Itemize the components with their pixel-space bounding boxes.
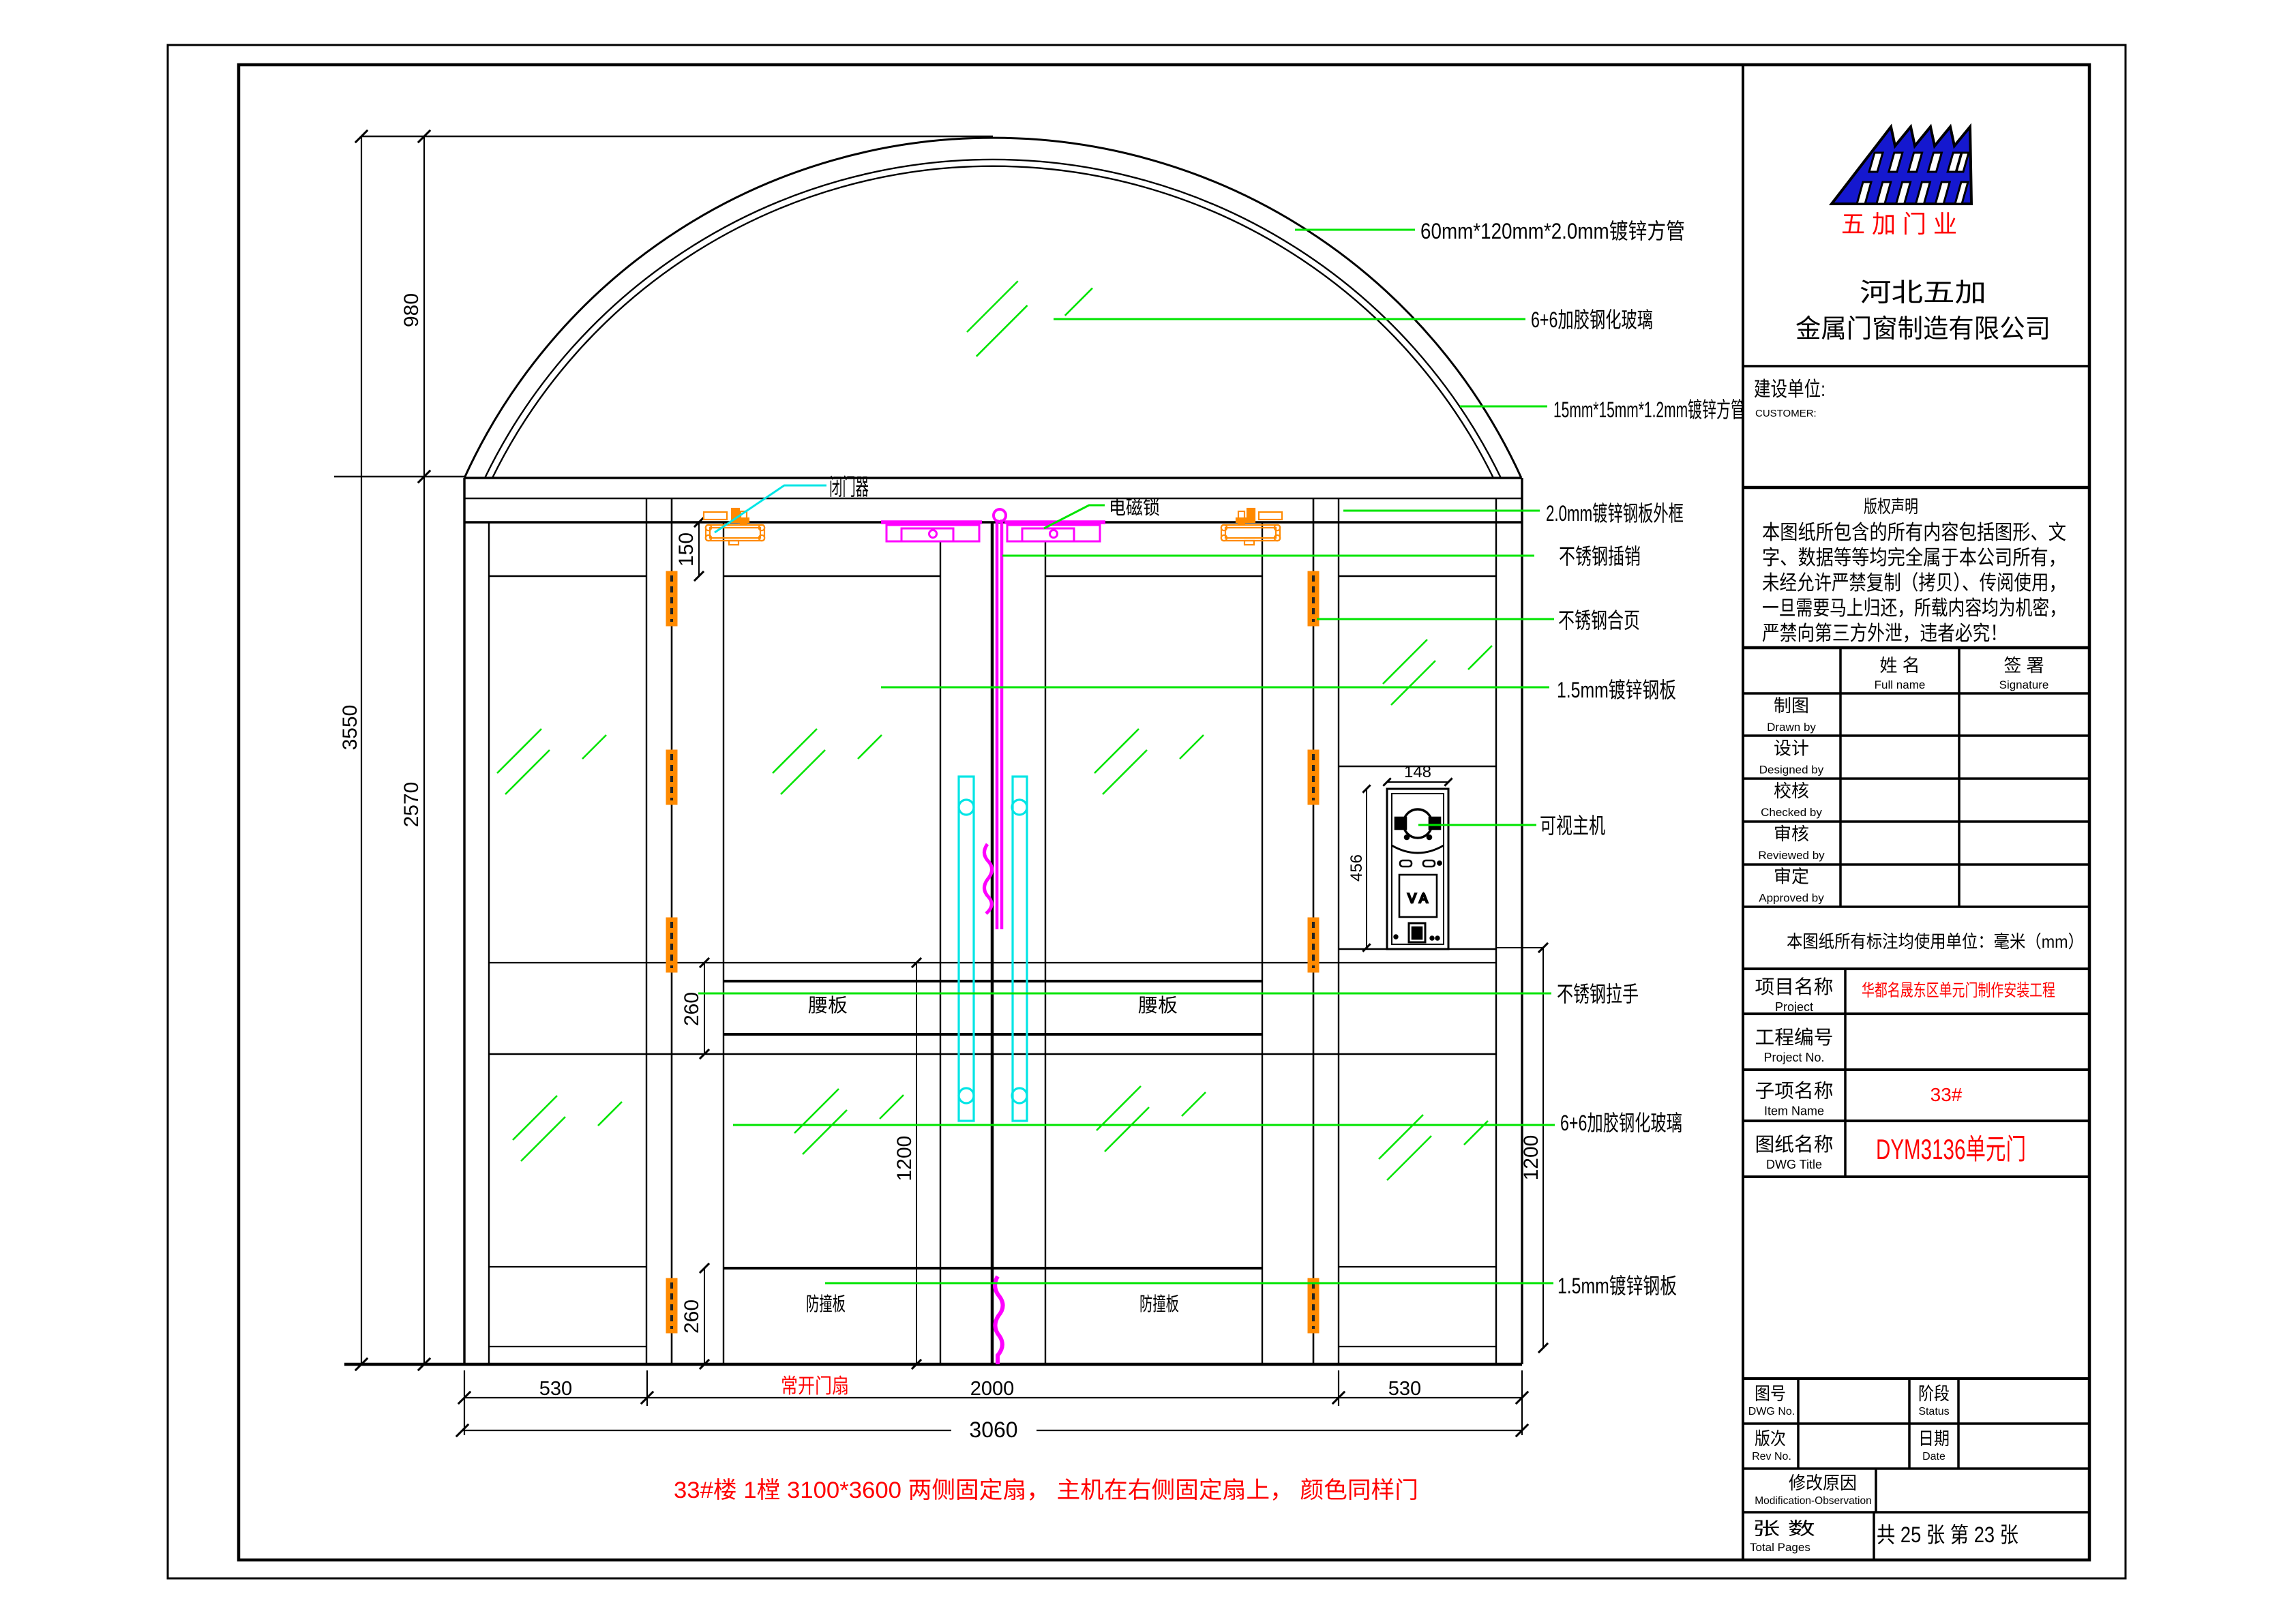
svg-text:DYM3136单元门: DYM3136单元门 — [1876, 1133, 2026, 1165]
svg-text:1.5mm镀锌钢板: 1.5mm镀锌钢板 — [1557, 678, 1676, 702]
svg-text:Signature: Signature — [1999, 678, 2049, 691]
svg-text:Approved by: Approved by — [1759, 891, 1824, 904]
svg-text:签 署: 签 署 — [2003, 655, 2044, 676]
svg-text:1200: 1200 — [893, 1136, 916, 1182]
svg-text:本图纸所有标注均使用单位：毫米（mm）: 本图纸所有标注均使用单位：毫米（mm） — [1787, 931, 2084, 952]
svg-text:腰板: 腰板 — [808, 995, 848, 1016]
svg-text:Status: Status — [1918, 1406, 1949, 1417]
svg-text:Project No.: Project No. — [1763, 1051, 1824, 1064]
svg-text:设计: 设计 — [1774, 738, 1809, 759]
svg-text:Drawn by: Drawn by — [1767, 721, 1816, 734]
svg-text:2.0mm镀锌钢板外框: 2.0mm镀锌钢板外框 — [1546, 501, 1684, 526]
svg-text:图纸名称: 图纸名称 — [1755, 1134, 1834, 1155]
svg-text:Reviewed by: Reviewed by — [1758, 849, 1825, 862]
svg-text:Date: Date — [1922, 1451, 1945, 1462]
svg-text:金属门窗制造有限公司: 金属门窗制造有限公司 — [1795, 315, 2051, 344]
svg-text:电磁锁: 电磁锁 — [1109, 497, 1160, 518]
svg-text:一旦需要马上归还，所载内容均为机密，: 一旦需要马上归还，所载内容均为机密， — [1762, 597, 2066, 620]
svg-text:33#: 33# — [1930, 1084, 1963, 1105]
svg-text:不锈钢合页: 不锈钢合页 — [1558, 608, 1640, 633]
svg-text:腰板: 腰板 — [1138, 995, 1178, 1016]
svg-text:共 25 张 第 23 张: 共 25 张 第 23 张 — [1877, 1522, 2018, 1547]
svg-text:6+6加胶钢化玻璃: 6+6加胶钢化玻璃 — [1531, 307, 1653, 332]
svg-text:Project: Project — [1775, 1000, 1813, 1014]
svg-text:260: 260 — [681, 992, 703, 1026]
svg-text:河北五加: 河北五加 — [1860, 279, 1986, 307]
svg-text:工程编号: 工程编号 — [1755, 1027, 1834, 1048]
svg-text:60mm*120mm*2.0mm镀锌方管: 60mm*120mm*2.0mm镀锌方管 — [1420, 219, 1685, 243]
svg-text:Item Name: Item Name — [1764, 1105, 1824, 1118]
svg-text:3060: 3060 — [969, 1417, 1017, 1442]
svg-text:456: 456 — [1347, 854, 1366, 882]
svg-text:建设单位:: 建设单位: — [1754, 378, 1825, 401]
svg-text:Designed by: Designed by — [1759, 764, 1824, 777]
svg-text:2570: 2570 — [400, 782, 423, 828]
svg-text:530: 530 — [539, 1378, 572, 1400]
svg-text:校核: 校核 — [1774, 781, 1809, 801]
svg-text:980: 980 — [400, 293, 423, 327]
svg-text:3550: 3550 — [339, 705, 361, 751]
svg-text:260: 260 — [681, 1300, 703, 1334]
svg-text:日期: 日期 — [1918, 1428, 1950, 1449]
svg-text:子项名称: 子项名称 — [1755, 1081, 1834, 1102]
svg-text:DWG Title: DWG Title — [1766, 1158, 1822, 1171]
svg-text:可视主机: 可视主机 — [1540, 813, 1605, 838]
svg-text:防撞板: 防撞板 — [1139, 1293, 1179, 1315]
svg-text:Checked by: Checked by — [1761, 806, 1822, 819]
svg-text:张 数: 张 数 — [1753, 1518, 1815, 1539]
svg-text:审定: 审定 — [1774, 866, 1809, 886]
svg-text:常开门扇: 常开门扇 — [781, 1375, 849, 1398]
svg-text:修改原因: 修改原因 — [1789, 1473, 1857, 1493]
svg-text:1200: 1200 — [1520, 1135, 1542, 1181]
svg-text:15mm*15mm*1.2mm镀锌方管: 15mm*15mm*1.2mm镀锌方管 — [1553, 397, 1745, 422]
svg-text:本图纸所包含的所有内容包括图形、文: 本图纸所包含的所有内容包括图形、文 — [1762, 522, 2066, 544]
svg-text:6+6加胶钢化玻璃: 6+6加胶钢化玻璃 — [1560, 1111, 1682, 1135]
svg-text:版次: 版次 — [1755, 1428, 1786, 1449]
svg-text:版权声明: 版权声明 — [1864, 496, 1918, 517]
svg-text:1.5mm镀锌钢板: 1.5mm镀锌钢板 — [1557, 1274, 1677, 1298]
svg-text:五 加 门 业: 五 加 门 业 — [1841, 210, 1957, 238]
svg-text:审核: 审核 — [1774, 824, 1809, 844]
svg-text:闭门器: 闭门器 — [829, 475, 869, 500]
svg-text:Total Pages: Total Pages — [1750, 1541, 1810, 1554]
svg-text:CUSTOMER:: CUSTOMER: — [1755, 408, 1817, 419]
svg-text:Modification-Observation: Modification-Observation — [1755, 1495, 1871, 1507]
svg-text:530: 530 — [1388, 1378, 1421, 1400]
svg-text:Full name: Full name — [1875, 678, 1926, 691]
svg-text:不锈钢插销: 不锈钢插销 — [1559, 544, 1641, 569]
svg-text:制图: 制图 — [1774, 695, 1809, 716]
svg-text:华都名晟东区单元门制作安装工程: 华都名晟东区单元门制作安装工程 — [1862, 981, 2055, 1000]
svg-text:Rev No.: Rev No. — [1752, 1451, 1791, 1462]
svg-text:未经允许严禁复制（拷贝）、传阅使用，: 未经允许严禁复制（拷贝）、传阅使用， — [1762, 572, 2066, 595]
svg-text:防撞板: 防撞板 — [806, 1293, 846, 1315]
svg-text:DWG No.: DWG No. — [1748, 1406, 1795, 1417]
svg-text:33#楼 1樘 3100*3600 两侧固定扇， 主: 33#楼 1樘 3100*3600 两侧固定扇， 主机在右侧固定扇上， 颜色同样… — [674, 1477, 1418, 1503]
svg-text:2000: 2000 — [970, 1378, 1015, 1400]
svg-text:不锈钢拉手: 不锈钢拉手 — [1557, 982, 1639, 1006]
svg-text:字、数据等等均完全属于本公司所有，: 字、数据等等均完全属于本公司所有， — [1762, 547, 2066, 569]
svg-text:阶段: 阶段 — [1918, 1383, 1950, 1404]
svg-text:V A: V A — [1407, 892, 1428, 906]
svg-text:项目名称: 项目名称 — [1755, 976, 1834, 997]
svg-text:严禁向第三方外泄，违者必究！: 严禁向第三方外泄，违者必究！ — [1762, 622, 2008, 645]
svg-text:图号: 图号 — [1755, 1383, 1786, 1404]
svg-text:150: 150 — [675, 532, 698, 567]
svg-text:姓 名: 姓 名 — [1879, 655, 1920, 676]
